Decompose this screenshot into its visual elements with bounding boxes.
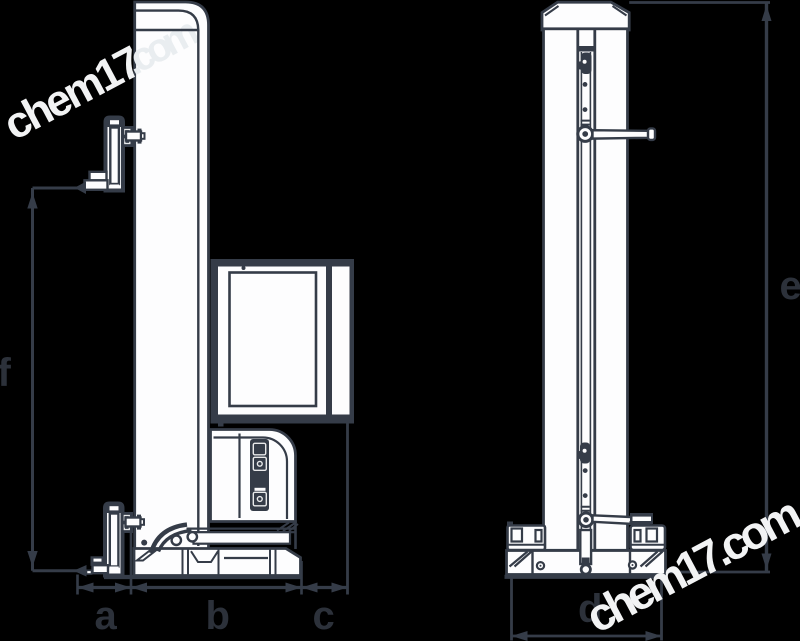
svg-text:e: e (780, 264, 800, 308)
svg-text:b: b (206, 594, 230, 638)
svg-text:a: a (95, 594, 118, 638)
svg-text:c: c (313, 594, 335, 638)
svg-text:f: f (0, 351, 12, 395)
